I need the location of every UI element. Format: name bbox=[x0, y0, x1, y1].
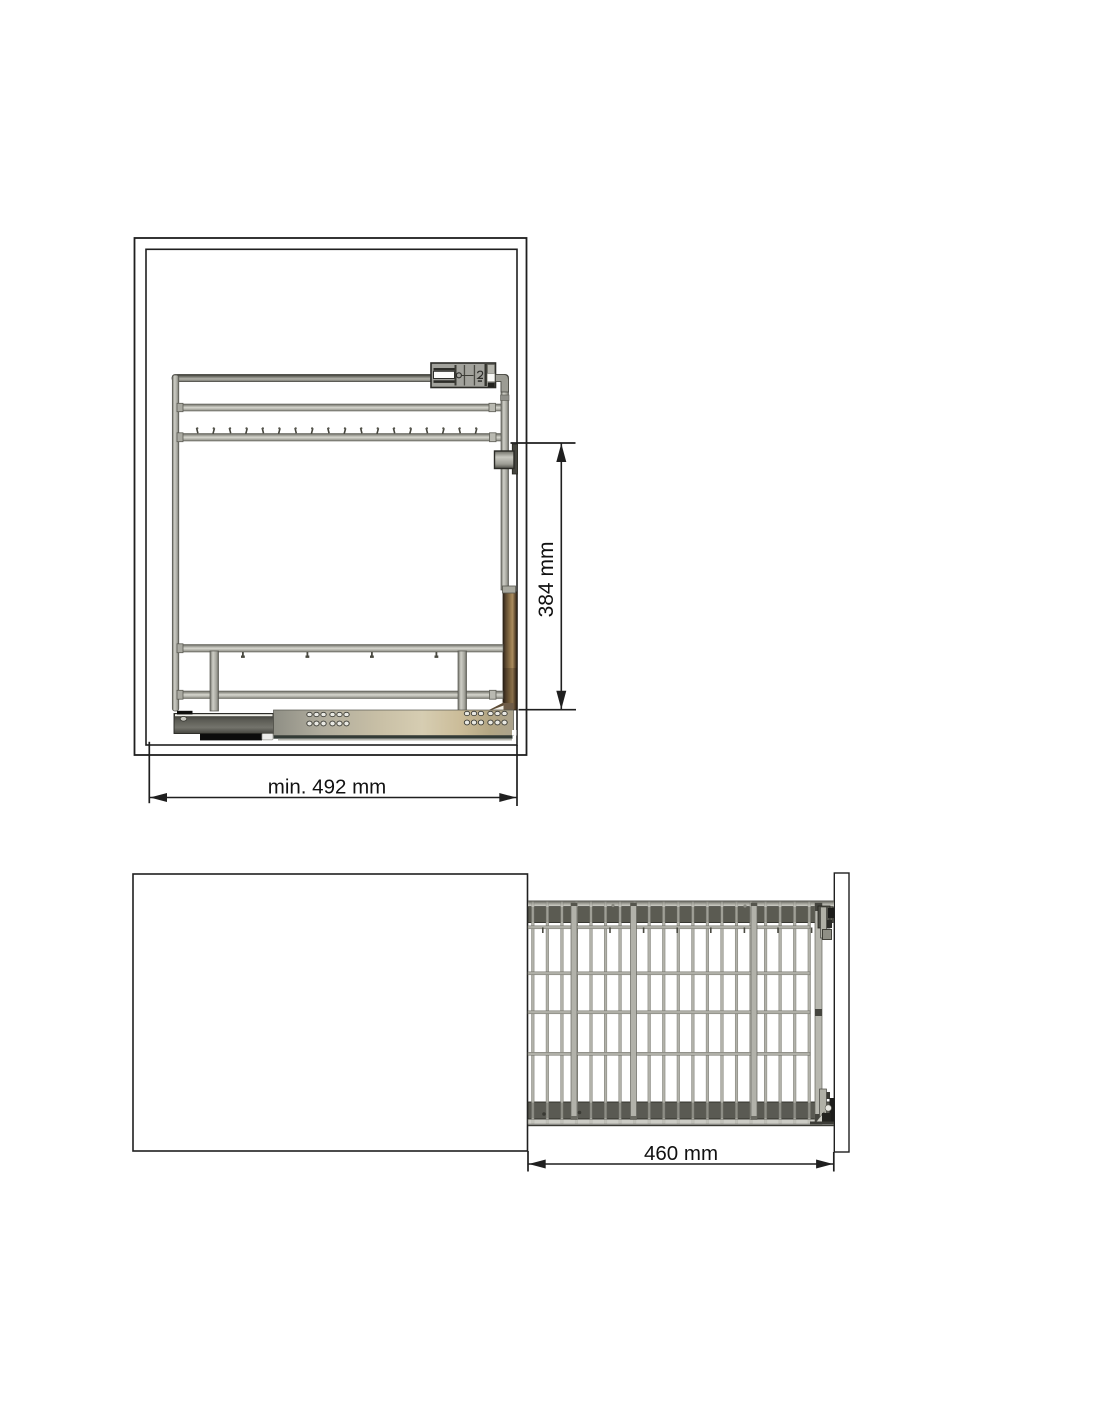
svg-text:384 mm: 384 mm bbox=[535, 542, 558, 618]
svg-text:460 mm: 460 mm bbox=[644, 1142, 718, 1165]
svg-text:min. 492 mm: min. 492 mm bbox=[268, 776, 386, 799]
